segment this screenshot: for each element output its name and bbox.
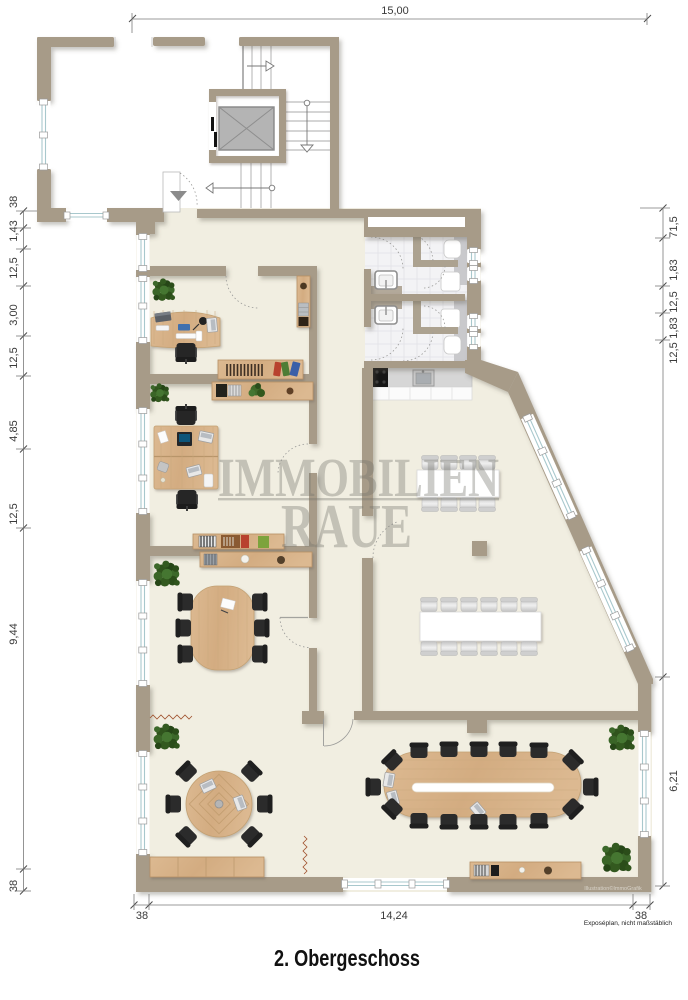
svg-text:71,5: 71,5 xyxy=(668,216,680,237)
svg-text:12,5: 12,5 xyxy=(668,342,680,363)
svg-text:12,5: 12,5 xyxy=(8,347,20,368)
svg-text:12,5: 12,5 xyxy=(8,257,20,278)
svg-text:38: 38 xyxy=(8,880,20,892)
svg-text:4,85: 4,85 xyxy=(8,420,20,441)
svg-text:Exposéplan, nicht maßstäblich: Exposéplan, nicht maßstäblich xyxy=(584,920,673,927)
svg-text:38: 38 xyxy=(8,196,20,208)
svg-text:9,44: 9,44 xyxy=(8,623,20,644)
svg-text:1,83: 1,83 xyxy=(668,317,680,338)
svg-text:3,00: 3,00 xyxy=(8,304,20,325)
svg-text:1,43: 1,43 xyxy=(8,220,20,241)
svg-text:12,5: 12,5 xyxy=(668,291,680,312)
svg-text:6,21: 6,21 xyxy=(668,770,680,791)
svg-text:14,24: 14,24 xyxy=(380,910,408,922)
svg-text:2. Obergeschoss: 2. Obergeschoss xyxy=(274,945,420,971)
svg-text:38: 38 xyxy=(136,910,148,922)
svg-text:15,00: 15,00 xyxy=(381,5,409,17)
svg-text:12,5: 12,5 xyxy=(8,503,20,524)
svg-text:RAUE: RAUE xyxy=(281,493,412,561)
svg-text:Illustration©ImmoGrafik: Illustration©ImmoGrafik xyxy=(584,885,642,892)
svg-text:1,83: 1,83 xyxy=(668,259,680,280)
